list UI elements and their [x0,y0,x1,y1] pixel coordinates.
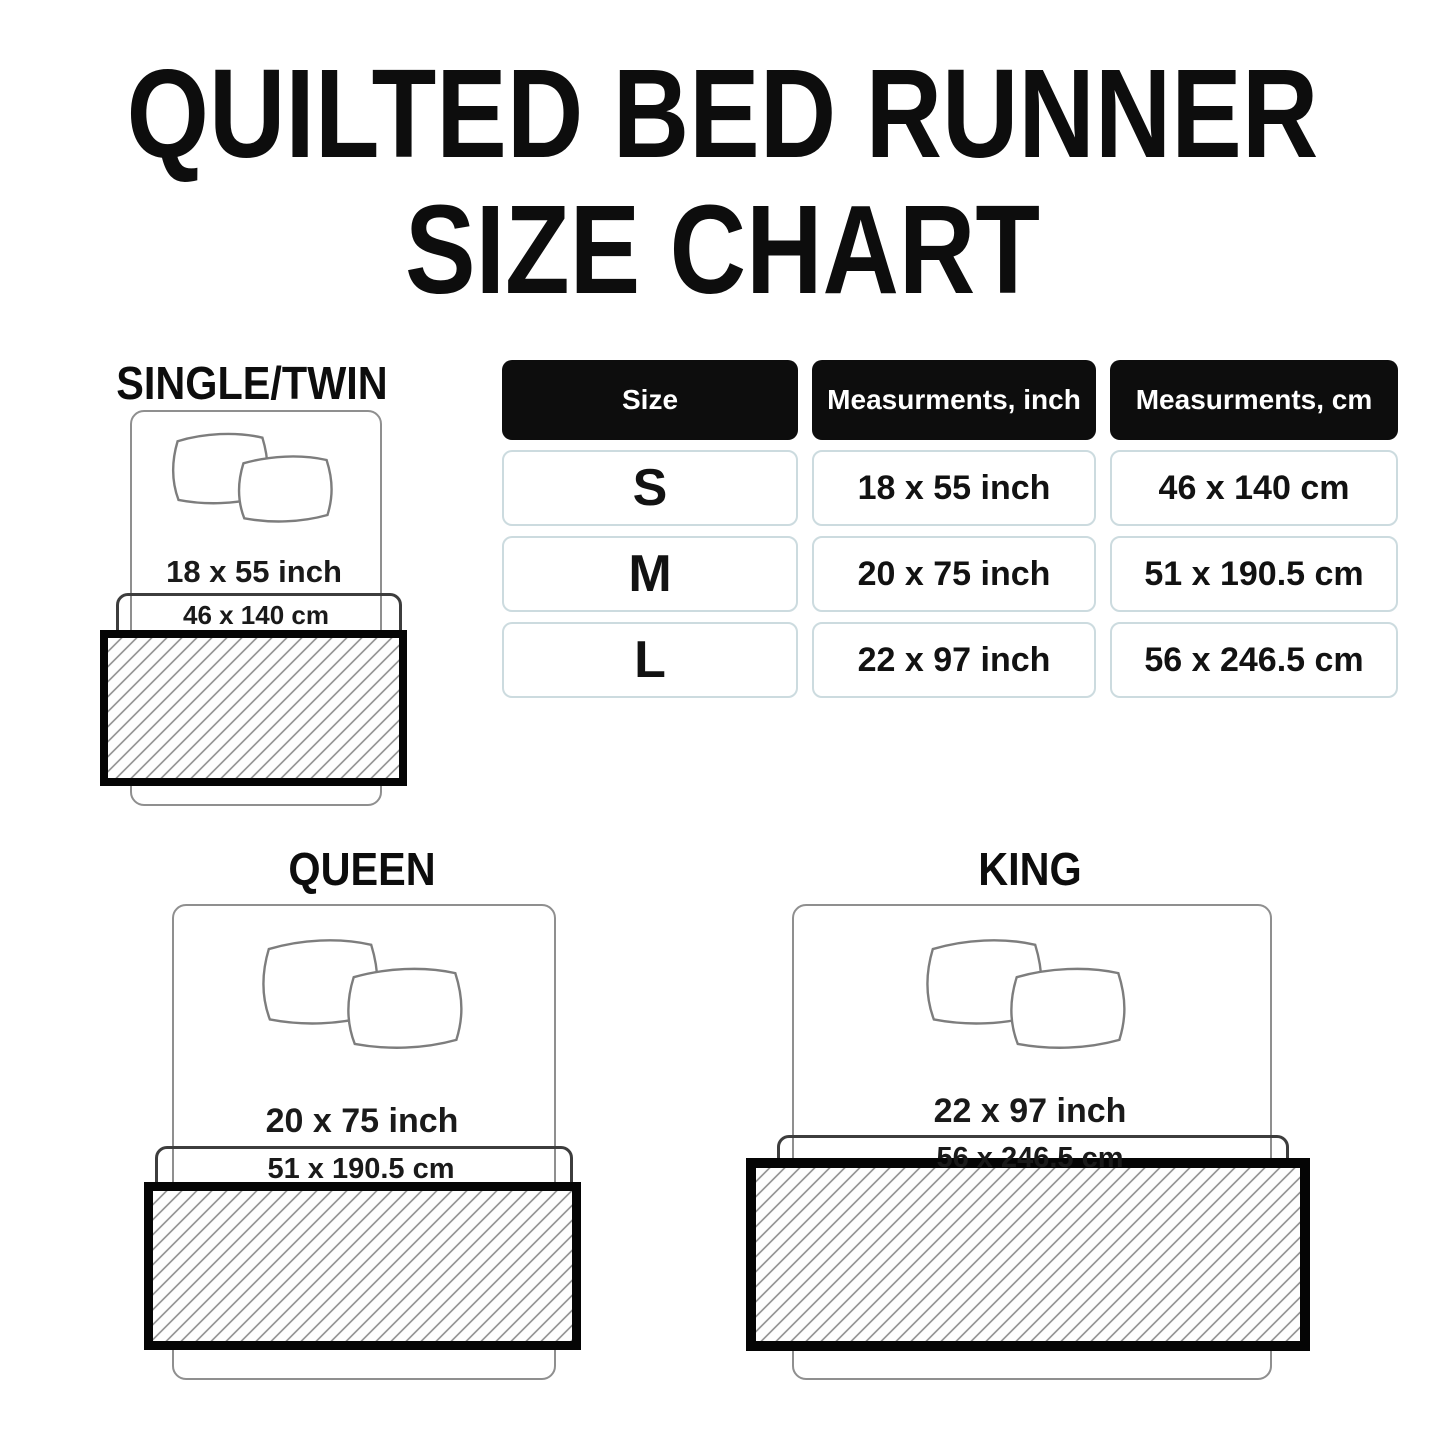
size-table: Size Measurments, inch Measurments, cm S… [502,360,1398,698]
page-title: QUILTED BED RUNNER SIZE CHART [0,46,1445,318]
table-row-m-inch: 20 x 75 inch [812,536,1096,612]
pillow-icon [341,961,468,1052]
pillow-icon [1004,961,1131,1052]
dimension-cm-single: 46 x 140 cm [116,600,396,631]
table-row-s-cm: 46 x 140 cm [1110,450,1398,526]
bed-runner-single [100,630,407,786]
table-row-s-inch: 18 x 55 inch [812,450,1096,526]
table-header-size: Size [502,360,798,440]
table-row-l-inch: 22 x 97 inch [812,622,1096,698]
pillow-icon [233,450,337,525]
page-title-line-1: QUILTED BED RUNNER [116,46,1330,182]
table-row-l-size: L [502,622,798,698]
table-row-l-cm: 56 x 246.5 cm [1110,622,1398,698]
table-row-m-size: M [502,536,798,612]
table-header-cm: Measurments, cm [1110,360,1398,440]
diagram-label-single-twin: SINGLE/TWIN [102,356,403,410]
size-chart-infographic: QUILTED BED RUNNER SIZE CHART Size Measu… [0,0,1445,1445]
table-header-inch: Measurments, inch [812,360,1096,440]
bed-runner-king [746,1158,1310,1351]
bed-runner-queen [144,1182,581,1350]
dimension-inch-queen: 20 x 75 inch [172,1102,552,1141]
diagram-label-queen: QUEEN [191,842,533,896]
page-title-line-2: SIZE CHART [116,182,1330,318]
dimension-cm-queen: 51 x 190.5 cm [155,1153,567,1186]
table-row-m-cm: 51 x 190.5 cm [1110,536,1398,612]
dimension-inch-single: 18 x 55 inch [130,554,378,590]
diagram-label-king: KING [816,842,1244,896]
dimension-cm-king: 56 x 246.5 cm [777,1142,1283,1175]
dimension-inch-king: 22 x 97 inch [792,1092,1268,1131]
table-row-s-size: S [502,450,798,526]
